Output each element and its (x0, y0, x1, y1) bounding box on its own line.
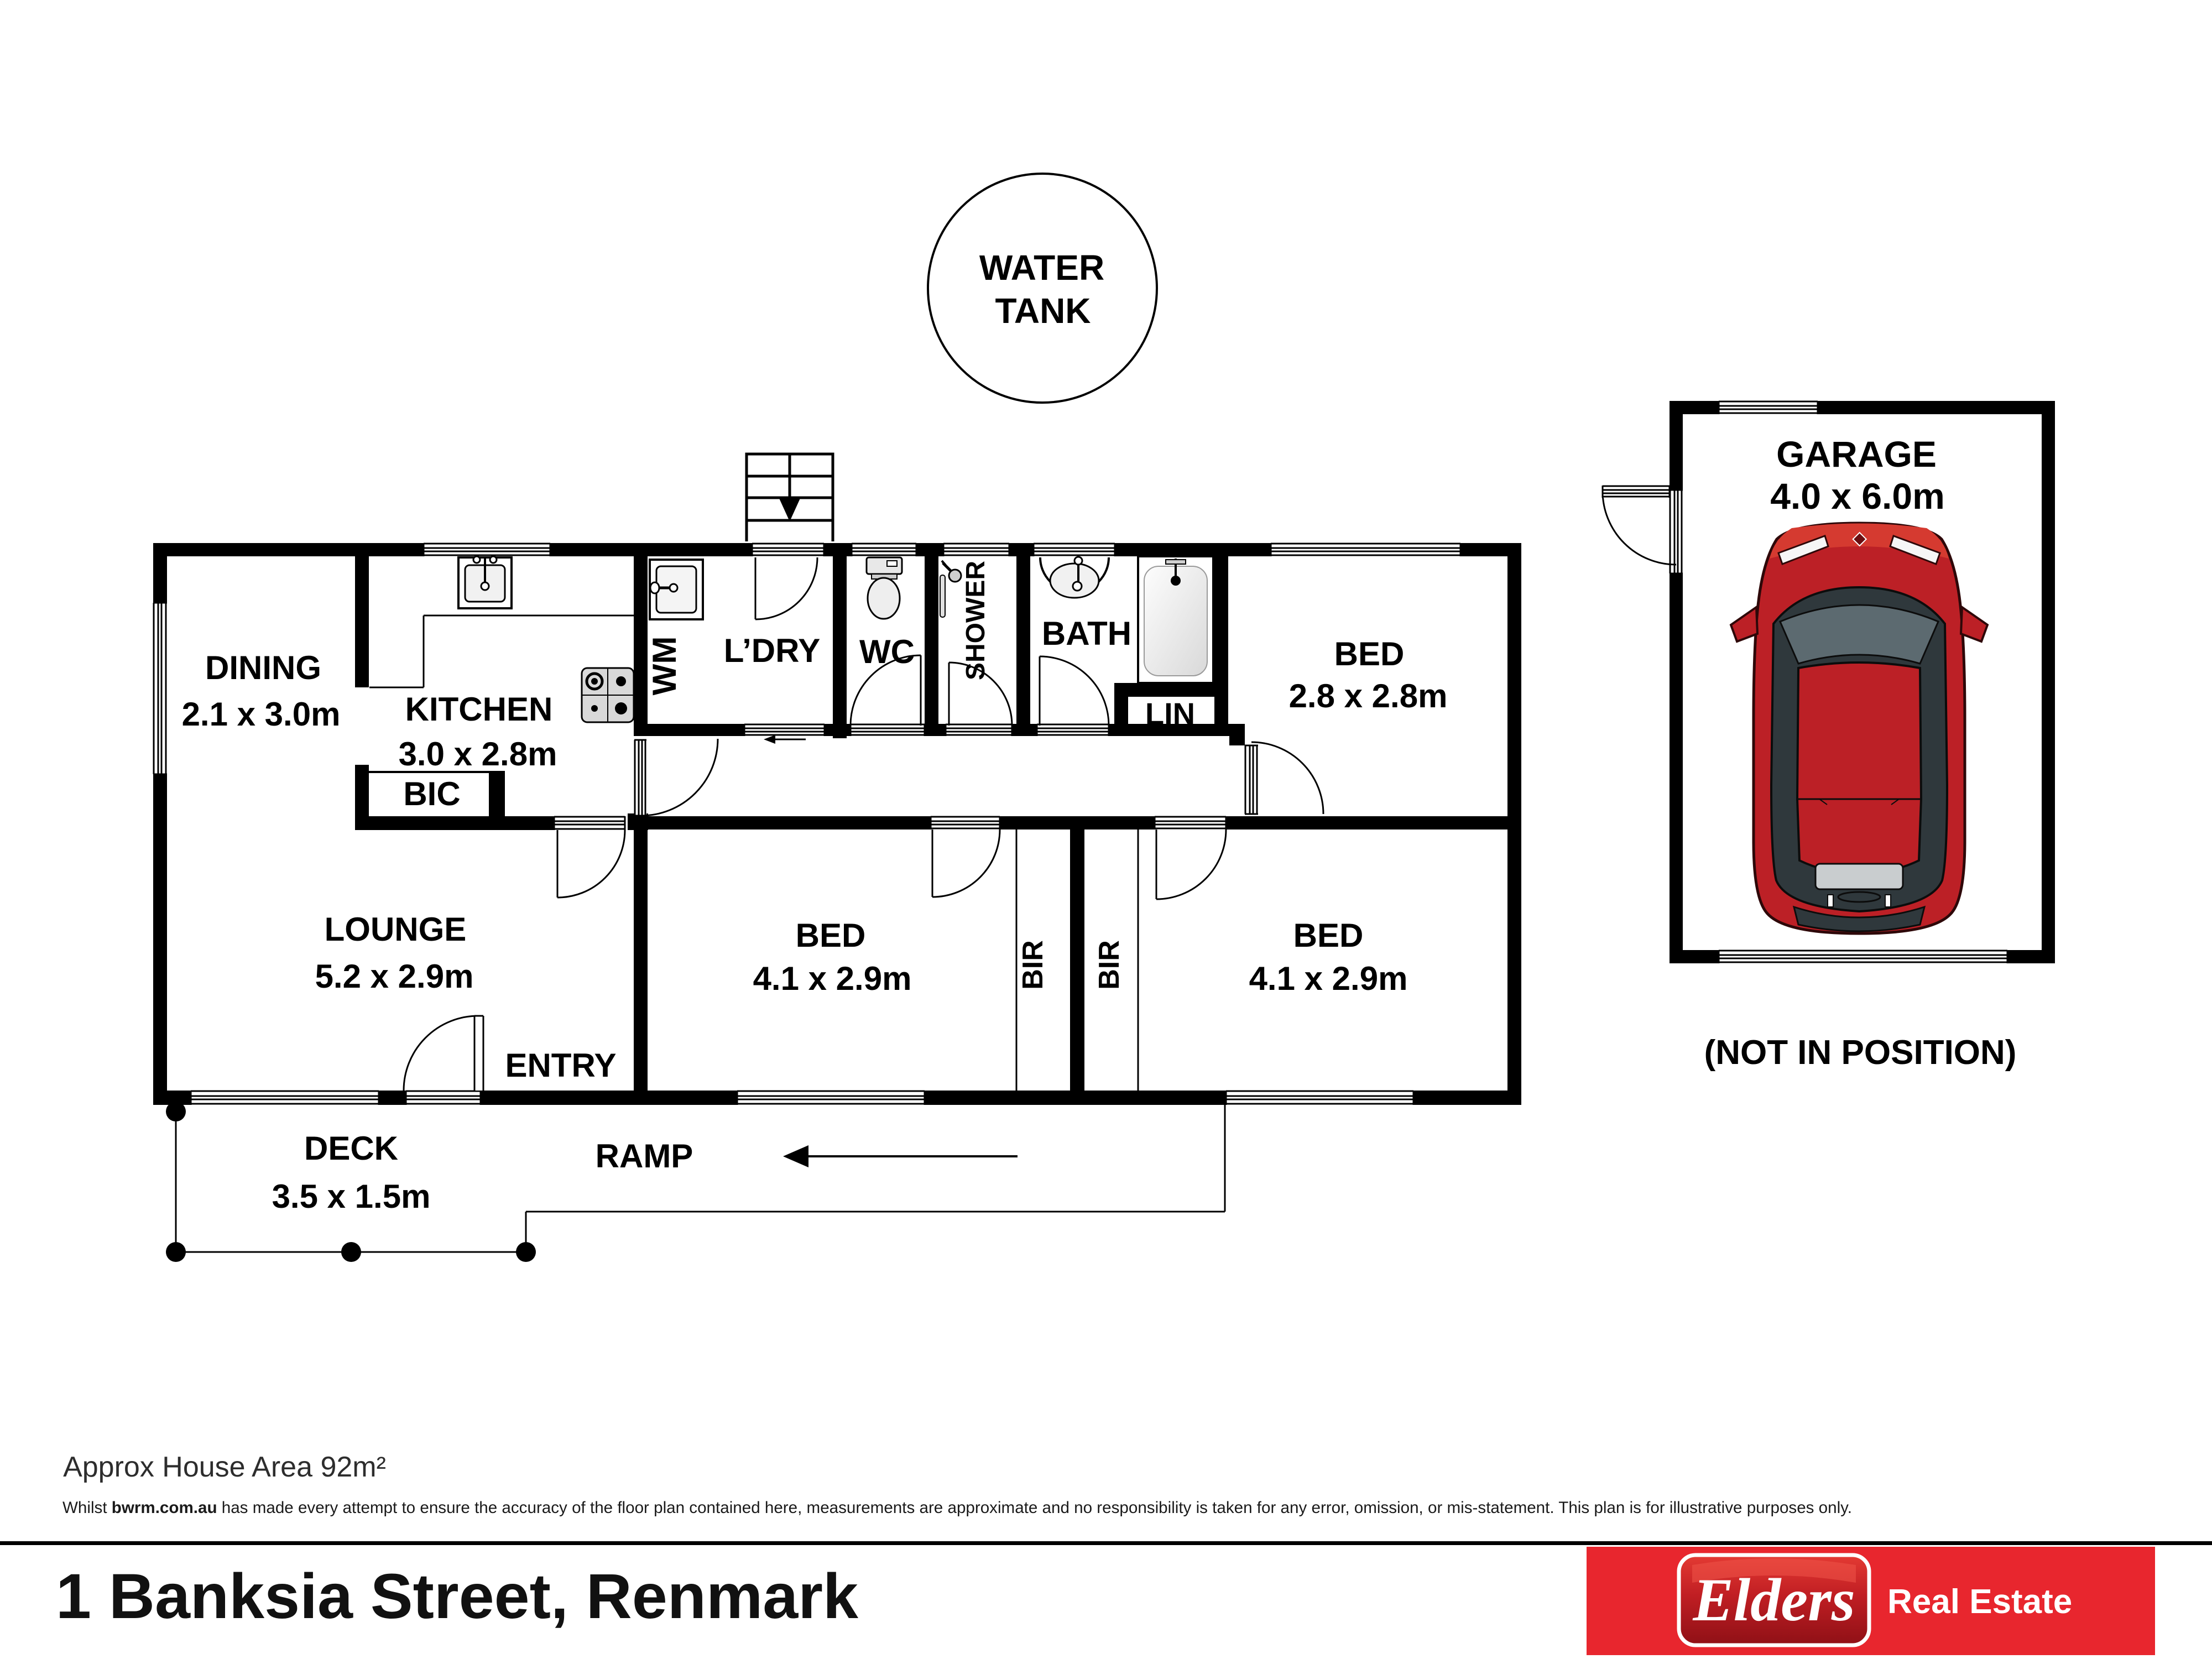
svg-text:BIC: BIC (403, 775, 460, 812)
svg-text:TANK: TANK (995, 291, 1091, 331)
svg-text:Elders: Elders (1692, 1566, 1855, 1634)
svg-text:LOUNGE: LOUNGE (325, 911, 467, 948)
svg-text:LIN: LIN (1145, 696, 1195, 731)
svg-text:5.2 x 2.9m: 5.2 x 2.9m (315, 958, 474, 995)
svg-text:BED: BED (796, 917, 866, 954)
svg-text:4.1 x 2.9m: 4.1 x 2.9m (753, 960, 912, 997)
svg-text:WM: WM (646, 637, 683, 696)
svg-text:Approx House Area 92m²: Approx House Area 92m² (63, 1451, 386, 1483)
svg-text:4.0 x 6.0m: 4.0 x 6.0m (1770, 476, 1945, 517)
svg-text:L’DRY: L’DRY (724, 632, 820, 669)
svg-text:1 Banksia Street, Renmark: 1 Banksia Street, Renmark (56, 1561, 859, 1632)
svg-text:DINING: DINING (205, 649, 321, 686)
svg-text:Whilst bwrm.com.au has made ev: Whilst bwrm.com.au has made every attemp… (62, 1499, 1852, 1517)
svg-text:BED: BED (1334, 635, 1405, 672)
svg-text:DECK: DECK (304, 1130, 398, 1167)
svg-text:Real Estate: Real Estate (1887, 1583, 2072, 1621)
svg-text:BIR: BIR (1017, 940, 1049, 990)
svg-text:KITCHEN: KITCHEN (405, 691, 553, 728)
svg-text:2.8 x 2.8m: 2.8 x 2.8m (1289, 677, 1448, 714)
svg-text:4.1 x 2.9m: 4.1 x 2.9m (1249, 960, 1408, 997)
svg-text:3.0 x 2.8m: 3.0 x 2.8m (399, 735, 557, 773)
svg-text:WATER: WATER (979, 248, 1104, 288)
svg-text:RAMP: RAMP (596, 1138, 693, 1175)
svg-text:2.1 x 3.0m: 2.1 x 3.0m (182, 696, 341, 733)
svg-text:GARAGE: GARAGE (1776, 434, 1937, 474)
svg-text:WC: WC (859, 633, 915, 670)
svg-text:(NOT IN POSITION): (NOT IN POSITION) (1704, 1034, 2017, 1072)
svg-text:ENTRY: ENTRY (505, 1047, 616, 1084)
svg-text:BED: BED (1293, 917, 1364, 954)
svg-text:3.5 x 1.5m: 3.5 x 1.5m (272, 1178, 431, 1215)
svg-text:SHOWER: SHOWER (961, 561, 990, 680)
svg-text:BATH: BATH (1042, 615, 1131, 652)
svg-text:BIR: BIR (1093, 940, 1125, 990)
